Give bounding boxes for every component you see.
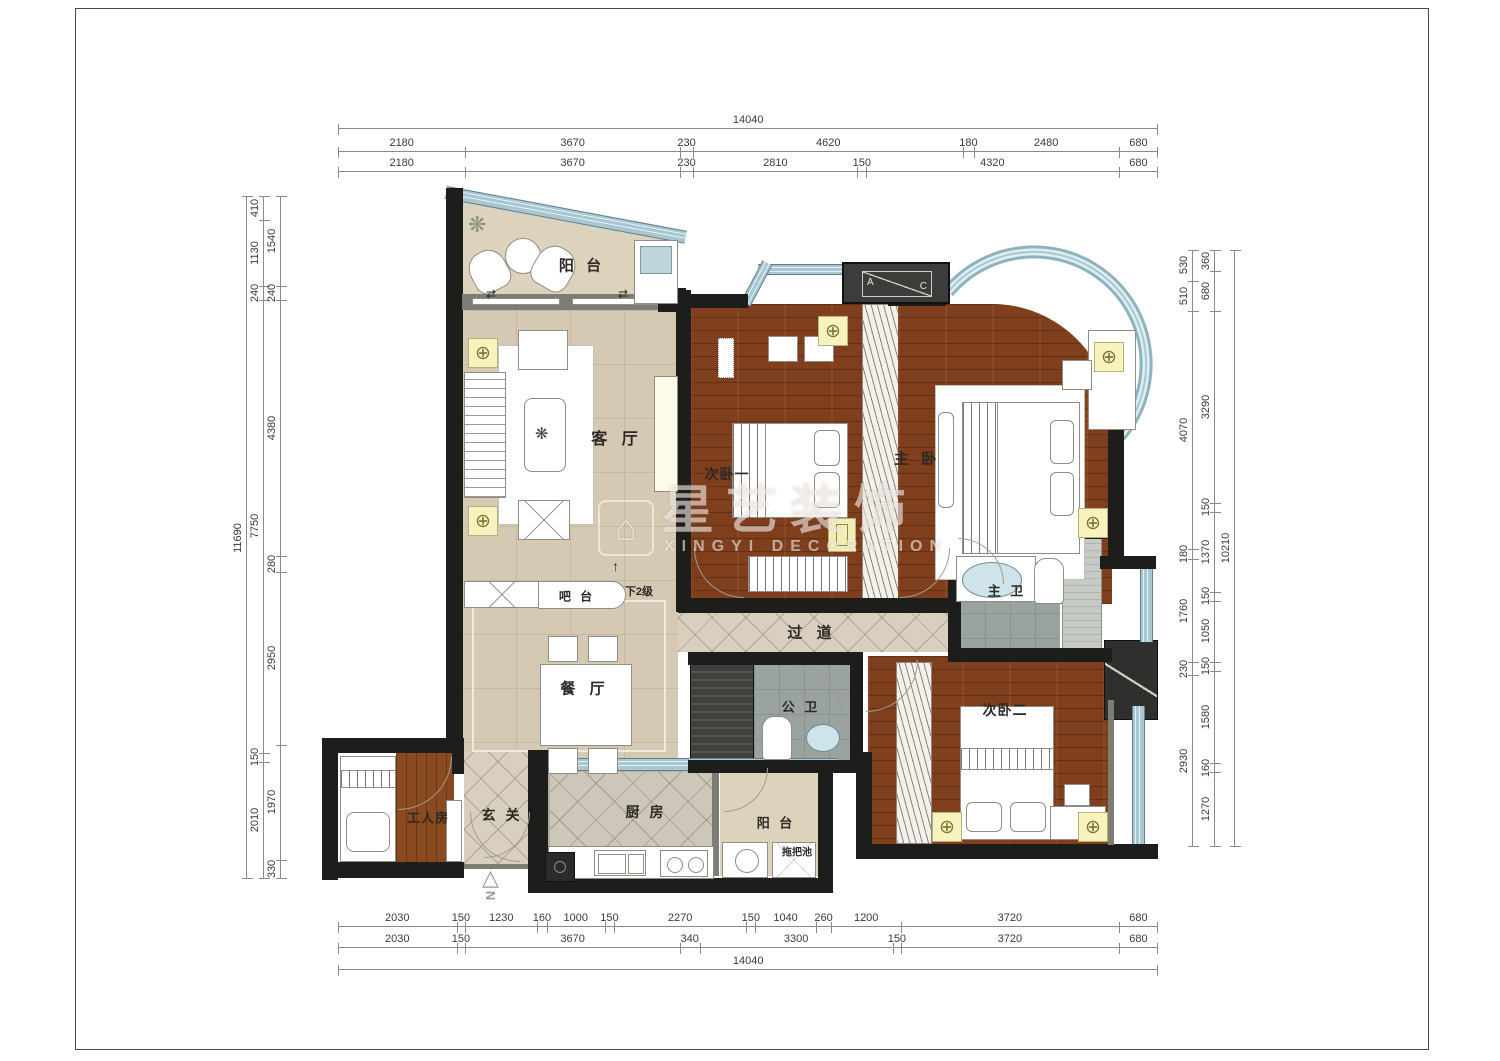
dim-value: 4320 xyxy=(980,157,1004,169)
dining-chair xyxy=(548,636,578,662)
dim-value: 3670 xyxy=(560,137,584,149)
dim-value: 150 xyxy=(853,157,871,169)
dim-value: 2480 xyxy=(1034,137,1058,149)
dim-value: 150 xyxy=(452,912,470,924)
dim-value: 360 xyxy=(1200,251,1212,269)
dim-value: 1270 xyxy=(1200,797,1212,821)
dim-segment-right-inner: 4070 xyxy=(1192,311,1193,549)
kitchen-sink xyxy=(594,850,646,876)
dim-segment-right-middle: 3290 xyxy=(1214,311,1215,503)
dim-segment-right-middle: 360 xyxy=(1214,250,1215,271)
dim-value: 1130 xyxy=(249,241,261,265)
dim-segment-bottom-row-1: 3720 xyxy=(901,926,1118,927)
ceiling-lamp-icon: ⊕ xyxy=(468,338,498,368)
sink-basin xyxy=(598,854,626,874)
dim-value: 680 xyxy=(1129,157,1147,169)
dim-value: 2950 xyxy=(266,646,278,670)
dim-segment-bottom-row-2: 3720 xyxy=(901,947,1118,948)
dim-segment-top-row-2: 3670 xyxy=(465,171,679,172)
dim-segment-bottom-row-1: 150 xyxy=(457,926,466,927)
pillow xyxy=(1050,472,1074,516)
dim-segment-bottom-row-2: 2030 xyxy=(338,947,457,948)
dim-segment-top-row-2: 2810 xyxy=(693,171,857,172)
dim-segment-right-middle: 1050 xyxy=(1214,601,1215,662)
dim-value: 150 xyxy=(452,933,470,945)
pillow xyxy=(1050,420,1074,464)
north-triangle-icon: △ xyxy=(482,868,499,888)
ceiling-lamp-icon: ⊕ xyxy=(818,316,848,346)
dresser xyxy=(748,556,848,592)
watermark-title-cn: 星艺装饰 xyxy=(662,468,918,543)
dim-value: 150 xyxy=(888,933,906,945)
watermark-logo-house-icon: ⌂ xyxy=(598,500,654,556)
window-walkin xyxy=(1140,566,1153,642)
column-detail xyxy=(554,861,566,873)
bed-bench xyxy=(938,412,954,508)
dim-value: 3670 xyxy=(560,157,584,169)
dim-segment-top-row-1: 230 xyxy=(680,151,693,152)
dim-segment-bottom-row-1: 160 xyxy=(537,926,546,927)
dim-segment-right-inner: 230 xyxy=(1192,662,1193,675)
watermark-title-en: XINGYI DECORATION xyxy=(664,538,948,556)
dim-value: 160 xyxy=(533,912,551,924)
wall-master-bath-jog xyxy=(1100,556,1156,569)
dim-value: 3720 xyxy=(998,933,1022,945)
dim-segment-bottom-row-1: 260 xyxy=(816,926,831,927)
dim-segment-right-middle: 1270 xyxy=(1214,772,1215,846)
north-letter: N xyxy=(483,887,498,904)
dim-value: 680 xyxy=(1129,137,1147,149)
dim-value: 2180 xyxy=(389,137,413,149)
room-label-master-bedroom: 主 卧 xyxy=(894,448,940,469)
plant-icon: ❋ xyxy=(535,424,548,444)
dim-value: 2930 xyxy=(1178,749,1190,773)
dim-value: 680 xyxy=(1129,912,1147,924)
north-arrow: △ N xyxy=(482,868,499,903)
wall-publicbath-right xyxy=(850,652,863,764)
dim-value: 280 xyxy=(266,555,278,573)
room-label-bar-counter: 吧 台 xyxy=(559,588,595,605)
room-label-living-room: 客 厅 xyxy=(591,425,642,449)
dim-value: 4380 xyxy=(266,416,278,440)
dim-value: 150 xyxy=(600,912,618,924)
dim-value: 1000 xyxy=(564,912,588,924)
dim-segment-right-total: 10210 xyxy=(1234,250,1235,847)
armchair xyxy=(518,330,568,370)
room-label-maid-room: 工人房 xyxy=(407,808,449,827)
dim-value: 2030 xyxy=(385,912,409,924)
dim-segment-bottom-row-1: 1200 xyxy=(831,926,901,927)
wall-living-bedroom1 xyxy=(676,290,691,612)
dim-segment-top-total: 14040 xyxy=(338,128,1158,129)
dim-value: 1370 xyxy=(1200,540,1212,564)
dim-segment-bottom-row-1: 150 xyxy=(746,926,755,927)
chair xyxy=(768,336,798,362)
wall-bedroom2-bottom xyxy=(856,844,1158,859)
kitchen-column xyxy=(545,852,575,882)
dim-segment-left-inner: 2950 xyxy=(280,572,281,744)
shelf xyxy=(718,338,734,378)
dim-segment-bottom-row-2: 680 xyxy=(1119,947,1159,948)
dim-value: 4620 xyxy=(816,137,840,149)
wall-masterbath-bottom xyxy=(948,648,1112,662)
room-label-public-bath: 公 卫 xyxy=(782,697,821,716)
dim-segment-bottom-row-1: 680 xyxy=(1119,926,1159,927)
dim-segment-bottom-total: 14040 xyxy=(338,969,1158,970)
toilet-public xyxy=(762,716,792,760)
dim-segment-left-middle: 240 xyxy=(263,286,264,300)
dim-value: 3300 xyxy=(784,933,808,945)
dim-segment-top-row-1: 2480 xyxy=(974,151,1119,152)
room-label-corridor: 过 道 xyxy=(787,622,836,643)
sink-public-bath xyxy=(806,724,840,752)
pillow xyxy=(966,802,1002,832)
dim-value: 180 xyxy=(1178,545,1190,563)
dim-segment-right-middle: 160 xyxy=(1214,763,1215,772)
ceiling-lamp-icon: ⊕ xyxy=(932,812,962,842)
dim-value: 1200 xyxy=(854,912,878,924)
dim-segment-bottom-row-2: 150 xyxy=(893,947,902,948)
dim-value: 410 xyxy=(249,199,261,217)
dim-value: 260 xyxy=(814,912,832,924)
dim-value: 680 xyxy=(1129,933,1147,945)
bench xyxy=(518,500,570,540)
dim-value: 160 xyxy=(1200,758,1212,776)
entry-threshold xyxy=(464,864,534,869)
dim-value: 150 xyxy=(742,912,760,924)
dim-value: 1230 xyxy=(489,912,513,924)
ceiling-lamp-icon: ⊕ xyxy=(1078,812,1108,842)
stool xyxy=(1064,784,1090,806)
washer-door xyxy=(735,849,759,873)
dim-segment-left-inner: 240 xyxy=(280,286,281,300)
dim-segment-top-row-2: 2180 xyxy=(338,171,465,172)
dim-segment-right-middle: 150 xyxy=(1214,592,1215,601)
dim-segment-left-inner: 330 xyxy=(280,860,281,879)
dim-segment-top-row-1: 4620 xyxy=(693,151,963,152)
ceiling-lamp-icon: ⊕ xyxy=(1094,342,1124,372)
dim-value: 1040 xyxy=(773,912,797,924)
dim-segment-right-inner: 2930 xyxy=(1192,675,1193,846)
pillow xyxy=(346,812,390,852)
wall-maid-left xyxy=(322,738,338,880)
cabinet-louvered xyxy=(690,664,754,762)
dim-value: 2010 xyxy=(249,808,261,832)
dim-segment-left-middle: 2010 xyxy=(263,762,264,879)
sink-basin xyxy=(628,854,644,874)
dim-segment-left-total: 11690 xyxy=(246,196,247,879)
dim-segment-bottom-row-1: 2270 xyxy=(614,926,747,927)
room-label-balcony-top: 阳 台 xyxy=(559,255,605,276)
wall-publicbath-bottom xyxy=(688,760,858,773)
dim-segment-bottom-row-1: 2030 xyxy=(338,926,457,927)
dim-segment-top-row-1: 3670 xyxy=(465,151,679,152)
dim-segment-top-row-1: 680 xyxy=(1119,151,1159,152)
dim-value: 150 xyxy=(1200,657,1212,675)
slide-arrows-icon: ⇄ xyxy=(486,287,496,301)
house-glyph: ⌂ xyxy=(615,507,637,549)
dim-segment-bottom-row-2: 340 xyxy=(680,947,700,948)
dining-chair xyxy=(588,748,618,774)
ac-letter-c: C xyxy=(920,281,927,292)
dim-value: 1760 xyxy=(1178,598,1190,622)
dim-segment-right-middle: 1370 xyxy=(1214,512,1215,592)
room-label-balcony-bottom: 阳 台 xyxy=(757,813,796,832)
wall-master-right xyxy=(1108,424,1124,560)
dim-segment-bottom-row-1: 1230 xyxy=(465,926,537,927)
wall-maid-top xyxy=(322,738,464,753)
dim-value: 7750 xyxy=(249,514,261,538)
dim-segment-left-inner: 4380 xyxy=(280,300,281,556)
dim-segment-left-middle: 7750 xyxy=(263,300,264,753)
wall-corridor-top xyxy=(678,598,950,613)
dim-value: 4070 xyxy=(1178,417,1190,441)
wall-maid-entry-divider xyxy=(452,740,464,774)
toilet-master xyxy=(1034,558,1064,604)
dim-value: 2030 xyxy=(385,933,409,945)
dim-segment-bottom-row-1: 150 xyxy=(605,926,614,927)
ac-letter-a: A xyxy=(867,277,874,288)
bed-blanket xyxy=(962,402,998,554)
dim-segment-right-middle: 680 xyxy=(1214,271,1215,311)
dim-value: 3670 xyxy=(560,933,584,945)
stove xyxy=(660,850,708,877)
wall-publicbath-top xyxy=(688,652,856,665)
slide-arrows-icon: ⇄ xyxy=(618,287,628,301)
balcony-sink xyxy=(640,246,672,274)
window-bedroom1-bay xyxy=(758,264,854,275)
room-label-bedroom-1: 次卧一 xyxy=(705,464,750,484)
wall-left-exterior xyxy=(446,188,463,748)
dining-chair xyxy=(588,636,618,662)
bed-blanket xyxy=(340,770,396,788)
room-label-bedroom-2: 次卧二 xyxy=(983,700,1028,720)
pillow xyxy=(814,430,840,466)
dim-segment-top-row-2: 4320 xyxy=(866,171,1118,172)
dim-value: 1970 xyxy=(266,790,278,814)
dim-segment-bottom-row-2: 150 xyxy=(457,947,466,948)
dim-segment-top-row-2: 230 xyxy=(680,171,693,172)
dim-value: 1050 xyxy=(1200,619,1212,643)
dim-segment-right-inner: 530 xyxy=(1192,250,1193,281)
dim-value: 330 xyxy=(266,860,278,878)
washing-machine xyxy=(722,842,768,878)
dim-value: 150 xyxy=(1200,587,1212,605)
burner xyxy=(688,857,704,873)
room-label-steps-down: 下2级 xyxy=(625,583,653,599)
wall-bedroom2-right-line xyxy=(1108,700,1114,845)
wall-bedroom1-top xyxy=(688,294,748,308)
dim-value: 150 xyxy=(1200,498,1212,516)
ceiling-lamp-icon: ⊕ xyxy=(1078,508,1108,538)
room-label-kitchen: 厨 房 xyxy=(626,802,667,822)
dim-value: 2270 xyxy=(668,912,692,924)
sofa xyxy=(464,372,506,498)
pillow xyxy=(1010,802,1046,832)
dim-value: 1580 xyxy=(1200,705,1212,729)
dim-value: 2810 xyxy=(763,157,787,169)
ac-unit-box: A C xyxy=(842,262,950,304)
room-label-dining-room: 餐 厅 xyxy=(560,678,609,699)
dim-segment-right-inner: 510 xyxy=(1192,281,1193,311)
dining-table xyxy=(540,664,632,746)
wall-maid-bottom xyxy=(322,862,464,878)
dim-segment-left-inner: 1540 xyxy=(280,196,281,286)
dim-value: 10210 xyxy=(1220,533,1232,564)
dim-segment-right-inner: 1760 xyxy=(1192,559,1193,662)
wall-bedroom2-left-step xyxy=(856,752,872,859)
bed-blanket xyxy=(960,748,1054,770)
dim-value: 14040 xyxy=(733,114,764,126)
dim-value: 530 xyxy=(1178,256,1190,274)
dining-chair xyxy=(548,748,578,774)
dim-segment-top-row-1: 2180 xyxy=(338,151,465,152)
dim-value: 340 xyxy=(681,933,699,945)
dim-value: 510 xyxy=(1178,287,1190,305)
bar-cabinet xyxy=(464,581,540,608)
ac-unit-panel: A C xyxy=(862,271,932,297)
burner xyxy=(667,857,683,873)
dim-segment-left-middle: 410 xyxy=(263,196,264,220)
dim-segment-top-row-2: 150 xyxy=(857,171,866,172)
desk-chair xyxy=(1062,360,1092,390)
dim-segment-bottom-row-1: 1000 xyxy=(547,926,605,927)
up-arrow-icon: ↑ xyxy=(612,558,619,574)
dim-segment-right-middle: 150 xyxy=(1214,662,1215,671)
dim-segment-left-middle: 150 xyxy=(263,753,264,762)
dim-segment-bottom-row-2: 3300 xyxy=(700,947,893,948)
dim-segment-right-middle: 150 xyxy=(1214,503,1215,512)
dim-value: 3720 xyxy=(998,912,1022,924)
dim-value: 14040 xyxy=(733,955,764,967)
dim-value: 180 xyxy=(959,137,977,149)
dim-value: 1540 xyxy=(266,229,278,253)
room-label-entry: 玄 关 xyxy=(482,805,523,825)
dim-segment-bottom-row-1: 1040 xyxy=(755,926,816,927)
ceiling-lamp-icon: ⊕ xyxy=(468,506,498,536)
dim-segment-bottom-row-2: 3670 xyxy=(465,947,679,948)
window-bedroom2-right xyxy=(1132,706,1145,844)
dim-value: 11690 xyxy=(232,523,244,553)
dim-value: 680 xyxy=(1200,282,1212,300)
dim-segment-left-inner: 1970 xyxy=(280,745,281,860)
plant-icon: ❋ xyxy=(468,212,486,238)
dim-segment-top-row-2: 680 xyxy=(1119,171,1159,172)
floor-plan-canvas: A C ❋ ❋ xyxy=(0,0,1500,1061)
wall-balcony2-right xyxy=(818,764,833,893)
room-label-master-bath: 主 卫 xyxy=(988,581,1027,600)
dim-segment-right-inner: 180 xyxy=(1192,549,1193,560)
room-label-mop-sink: 拖把池 xyxy=(782,844,812,859)
dim-segment-right-middle: 1580 xyxy=(1214,671,1215,763)
dim-segment-left-inner: 280 xyxy=(280,556,281,572)
dim-value: 2180 xyxy=(389,157,413,169)
dim-value: 3290 xyxy=(1200,395,1212,419)
dim-value: 150 xyxy=(249,748,261,766)
dim-segment-top-row-1: 180 xyxy=(963,151,974,152)
dim-segment-left-middle: 1130 xyxy=(263,220,264,286)
